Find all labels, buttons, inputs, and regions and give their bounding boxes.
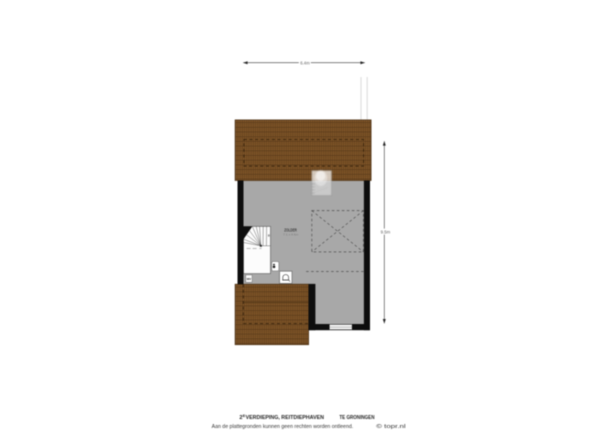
svg-text:6.4m: 6.4m xyxy=(300,60,310,66)
svg-text:VERDIEPING, REITDIEPHAVEN: VERDIEPING, REITDIEPHAVEN xyxy=(246,415,324,421)
svg-text:7.1 x 4.6m: 7.1 x 4.6m xyxy=(283,232,299,236)
svg-text:TE GRONINGEN: TE GRONINGEN xyxy=(339,415,374,421)
svg-text:© topr.nl: © topr.nl xyxy=(376,423,406,430)
svg-text:Aan de plattegronden kunnen ge: Aan de plattegronden kunnen geen rechten… xyxy=(212,424,354,430)
svg-text:9.5m: 9.5m xyxy=(381,229,391,235)
